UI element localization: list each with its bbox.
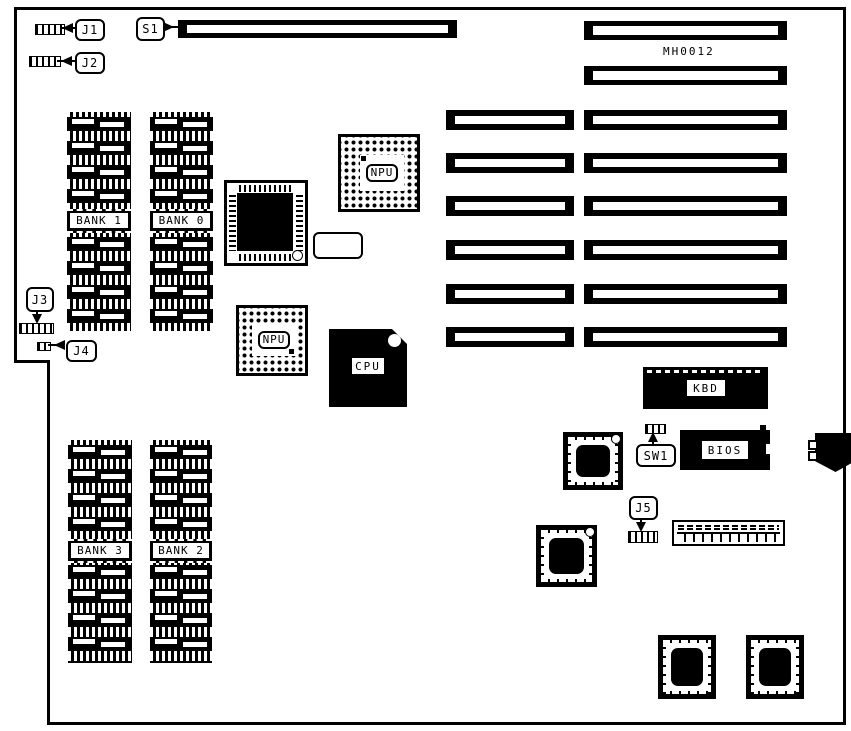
- qfp-pins-bottom: [239, 254, 293, 261]
- slot-s1: [178, 20, 457, 38]
- din-pin-2: [808, 451, 818, 461]
- power-connector: [672, 520, 785, 546]
- callout-j3: J3: [26, 287, 54, 312]
- bios-chip: BIOS: [680, 430, 770, 470]
- npu-lower-label: NPU: [258, 331, 291, 349]
- callout-j2-label: J2: [82, 56, 98, 70]
- npu-upper-pin1-dot: [361, 156, 366, 161]
- jumper-j1: [35, 24, 65, 35]
- board-outline-left-upper: [14, 7, 17, 363]
- expansion-slot-long-6: [584, 327, 787, 347]
- plcc-chip-1: [563, 432, 623, 490]
- qfp-pins-left: [229, 195, 236, 251]
- plcc-chip-4: [746, 635, 804, 699]
- callout-arrow-j4: [54, 340, 65, 350]
- qfp-pins-top: [239, 185, 293, 192]
- callout-line-s1: [170, 26, 180, 28]
- power-connector-pins-row1: [678, 525, 779, 527]
- callout-j3-label: J3: [32, 293, 48, 307]
- bank-2-label-row: BANK 2: [150, 539, 212, 563]
- qfp-chip: [224, 180, 308, 266]
- qfp-pins-right: [296, 195, 303, 251]
- callout-arrow-j3: [32, 314, 42, 324]
- plcc-chip-3-core: [671, 648, 703, 686]
- plcc-chip-2: [536, 525, 597, 587]
- npu-lower-socket: NPU: [236, 305, 308, 376]
- board-outline-notch: [14, 360, 50, 363]
- bank-1-label: BANK 1: [69, 212, 129, 229]
- callout-sw1: SW1: [636, 444, 676, 467]
- kbd-dashed-line: [647, 370, 764, 373]
- memory-bank-1: BANK 1: [67, 112, 131, 331]
- din-pin-1: [808, 440, 818, 450]
- expansion-slot-short-2: [446, 153, 574, 173]
- expansion-slot-short-6: [446, 327, 574, 347]
- npu-lower-center: NPU: [252, 324, 296, 356]
- memory-bank-2: BANK 2: [150, 440, 212, 663]
- plcc-chip-3: [658, 635, 716, 699]
- cpu-pin1-dot: [388, 334, 401, 347]
- expansion-slot-long-3: [584, 196, 787, 216]
- power-connector-pins-row2: [678, 528, 779, 530]
- bios-notch: [766, 444, 770, 454]
- bank-0-label: BANK 0: [152, 212, 211, 229]
- slot-top-1: [584, 21, 787, 40]
- cpu-chip: CPU: [329, 329, 407, 407]
- part-number: MH0012: [663, 45, 715, 58]
- callout-j4-label: J4: [73, 344, 89, 358]
- callout-j1: J1: [75, 19, 105, 41]
- npu-lower-pin1-dot: [289, 349, 294, 354]
- plcc-chip-1-core: [576, 445, 610, 477]
- bank-3-label: BANK 3: [70, 542, 130, 559]
- bios-label: BIOS: [702, 441, 748, 459]
- callout-arrow-j5: [636, 522, 646, 532]
- power-connector-sockets: [677, 532, 780, 542]
- board-outline-top: [14, 7, 846, 10]
- expansion-slot-long-2: [584, 153, 787, 173]
- callout-arrow-j2: [61, 56, 72, 66]
- qfp-pin1-dot: [292, 250, 303, 261]
- memory-bank-0: BANK 0: [150, 112, 213, 331]
- callout-j5: J5: [629, 496, 658, 520]
- callout-j2: J2: [75, 52, 105, 74]
- npu-upper-center: NPU: [360, 155, 404, 191]
- plcc-chip-2-dot: [585, 527, 595, 537]
- board-outline-left-lower: [47, 360, 50, 725]
- jumper-j5: [628, 531, 658, 543]
- kbd-label: KBD: [687, 380, 725, 396]
- slot-top-2: [584, 66, 787, 85]
- expansion-slot-long-5: [584, 284, 787, 304]
- bios-tab: [760, 425, 766, 430]
- jumper-j3: [19, 323, 54, 334]
- callout-j4: J4: [66, 340, 97, 362]
- bank-0-label-row: BANK 0: [150, 209, 213, 233]
- plcc-chip-2-core: [549, 538, 584, 574]
- bank-2-label: BANK 2: [152, 542, 210, 559]
- callout-s1: S1: [136, 17, 165, 41]
- callout-s1-label: S1: [142, 22, 158, 36]
- kbd-chip: KBD: [643, 367, 768, 409]
- board-outline-bottom: [47, 722, 846, 725]
- expansion-slot-short-1: [446, 110, 574, 130]
- expansion-slot-long-4: [584, 240, 787, 260]
- expansion-slot-short-3: [446, 196, 574, 216]
- board-outline-right: [843, 7, 846, 725]
- qfp-core: [237, 193, 293, 251]
- expansion-slot-short-5: [446, 284, 574, 304]
- expansion-slot-long-1: [584, 110, 787, 130]
- npu-upper-label: NPU: [366, 164, 399, 182]
- memory-bank-3: BANK 3: [68, 440, 132, 663]
- bank-1-label-row: BANK 1: [67, 209, 131, 233]
- callout-j5-label: J5: [635, 501, 651, 515]
- plcc-chip-1-dot: [611, 434, 621, 444]
- callout-arrow-j1: [62, 23, 73, 33]
- plcc-chip-4-core: [759, 648, 791, 686]
- crystal-oscillator: [313, 232, 363, 259]
- npu-upper-socket: NPU: [338, 134, 420, 212]
- callout-j1-label: J1: [82, 23, 98, 37]
- cpu-label: CPU: [352, 358, 384, 374]
- din-keyboard-connector: [815, 433, 851, 472]
- bank-3-label-row: BANK 3: [68, 539, 132, 563]
- expansion-slot-short-4: [446, 240, 574, 260]
- callout-sw1-label: SW1: [644, 449, 669, 463]
- motherboard-diagram: J1 J2 S1 MH0012 BANK 1 BANK 0 BANK 3: [0, 0, 851, 731]
